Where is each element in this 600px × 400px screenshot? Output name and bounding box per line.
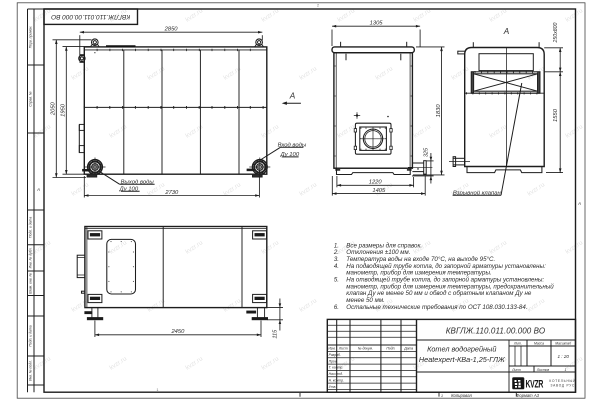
svg-text:1305: 1305	[370, 21, 384, 27]
svg-text:Разраб.: Разраб.	[329, 353, 341, 357]
svg-text:Инв. № подл.: Инв. № подл.	[28, 360, 32, 381]
svg-text:Инв. № дубл.: Инв. № дубл.	[28, 247, 32, 268]
svg-text:Копировал: Копировал	[451, 393, 472, 398]
svg-text:Т. контр.: Т. контр.	[329, 366, 344, 370]
svg-text:Ду 100: Ду 100	[118, 186, 138, 192]
svg-text:Подп. и дата: Подп. и дата	[28, 325, 32, 346]
svg-text:А: А	[577, 201, 581, 206]
svg-text:1: 1	[565, 368, 567, 372]
svg-text:№ докум.: № докум.	[358, 347, 373, 351]
svg-text:6.: 6.	[334, 304, 339, 311]
svg-text:Пров.: Пров.	[329, 359, 338, 363]
svg-text:Лит.: Лит.	[513, 342, 522, 346]
svg-text:Взам. инв. №: Взам. инв. №	[28, 272, 32, 293]
svg-text:1: 1	[157, 388, 159, 392]
svg-text:А: А	[289, 92, 296, 101]
svg-text:Подп. и дата: Подп. и дата	[28, 217, 32, 238]
svg-text:4.: 4.	[334, 263, 339, 270]
svg-text:1: 1	[441, 394, 443, 398]
svg-text:Heatexpert-КВа-1,25-ГЛЖ: Heatexpert-КВа-1,25-ГЛЖ	[419, 355, 506, 364]
svg-text:КВГЛЖ.110.011.00.000 ВО: КВГЛЖ.110.011.00.000 ВО	[51, 13, 130, 20]
svg-text:1 : 20: 1 : 20	[557, 354, 569, 359]
svg-text:2850: 2850	[164, 27, 179, 33]
svg-text:Справ. №: Справ. №	[28, 91, 32, 107]
svg-text:1220: 1220	[369, 180, 383, 186]
svg-text:1950: 1950	[61, 103, 67, 117]
svg-text:Подп.: Подп.	[386, 347, 395, 351]
svg-text:Взрывной клапан: Взрывной клапан	[453, 189, 502, 196]
svg-text:Нач.отд.: Нач.отд.	[329, 372, 343, 376]
svg-text:KVZR: KVZR	[526, 379, 544, 391]
svg-text:115: 115	[272, 329, 278, 339]
svg-text:2730: 2730	[164, 190, 179, 196]
svg-text:Листов: Листов	[536, 368, 550, 372]
svg-text:КОТЕЛЬНЫЙ: КОТЕЛЬНЫЙ	[549, 379, 576, 383]
svg-text:Лист: Лист	[338, 347, 348, 351]
svg-text:Котел водогрейный: Котел водогрейный	[427, 344, 496, 353]
svg-text:250х800: 250х800	[553, 22, 559, 43]
svg-text:Масса: Масса	[534, 342, 544, 346]
svg-text:325: 325	[423, 147, 429, 157]
svg-text:Изм.: Изм.	[328, 347, 335, 351]
svg-text:А: А	[36, 187, 40, 192]
svg-text:2: 2	[317, 4, 319, 8]
svg-text:2050: 2050	[51, 101, 57, 116]
svg-text:Остальные технические требован: Остальные технические требования по ОСТ …	[346, 304, 527, 311]
svg-text:А: А	[503, 27, 510, 36]
svg-text:2450: 2450	[170, 329, 185, 335]
svg-text:Выход воды: Выход воды	[121, 179, 155, 185]
svg-text:Перв. примен.: Перв. примен.	[28, 26, 32, 49]
svg-text:ЗАВОД РУС: ЗАВОД РУС	[550, 383, 575, 387]
svg-text:Лист: Лист	[511, 368, 521, 372]
svg-text:1830: 1830	[436, 104, 442, 118]
svg-text:Н. контр.: Н. контр.	[329, 378, 344, 382]
svg-text:Ду 100: Ду 100	[279, 152, 299, 158]
svg-text:Масштаб: Масштаб	[555, 342, 571, 346]
svg-text:5.: 5.	[334, 276, 339, 283]
svg-text:Утв.: Утв.	[329, 385, 337, 389]
svg-text:Формат А3: Формат А3	[516, 393, 540, 398]
svg-text:1550: 1550	[553, 108, 559, 122]
svg-text:1405: 1405	[372, 188, 386, 194]
svg-text:Вход воды: Вход воды	[278, 142, 307, 148]
svg-text:КВГЛЖ.110.011.00.000 ВО: КВГЛЖ.110.011.00.000 ВО	[446, 326, 546, 335]
svg-text:Дата: Дата	[403, 347, 413, 351]
